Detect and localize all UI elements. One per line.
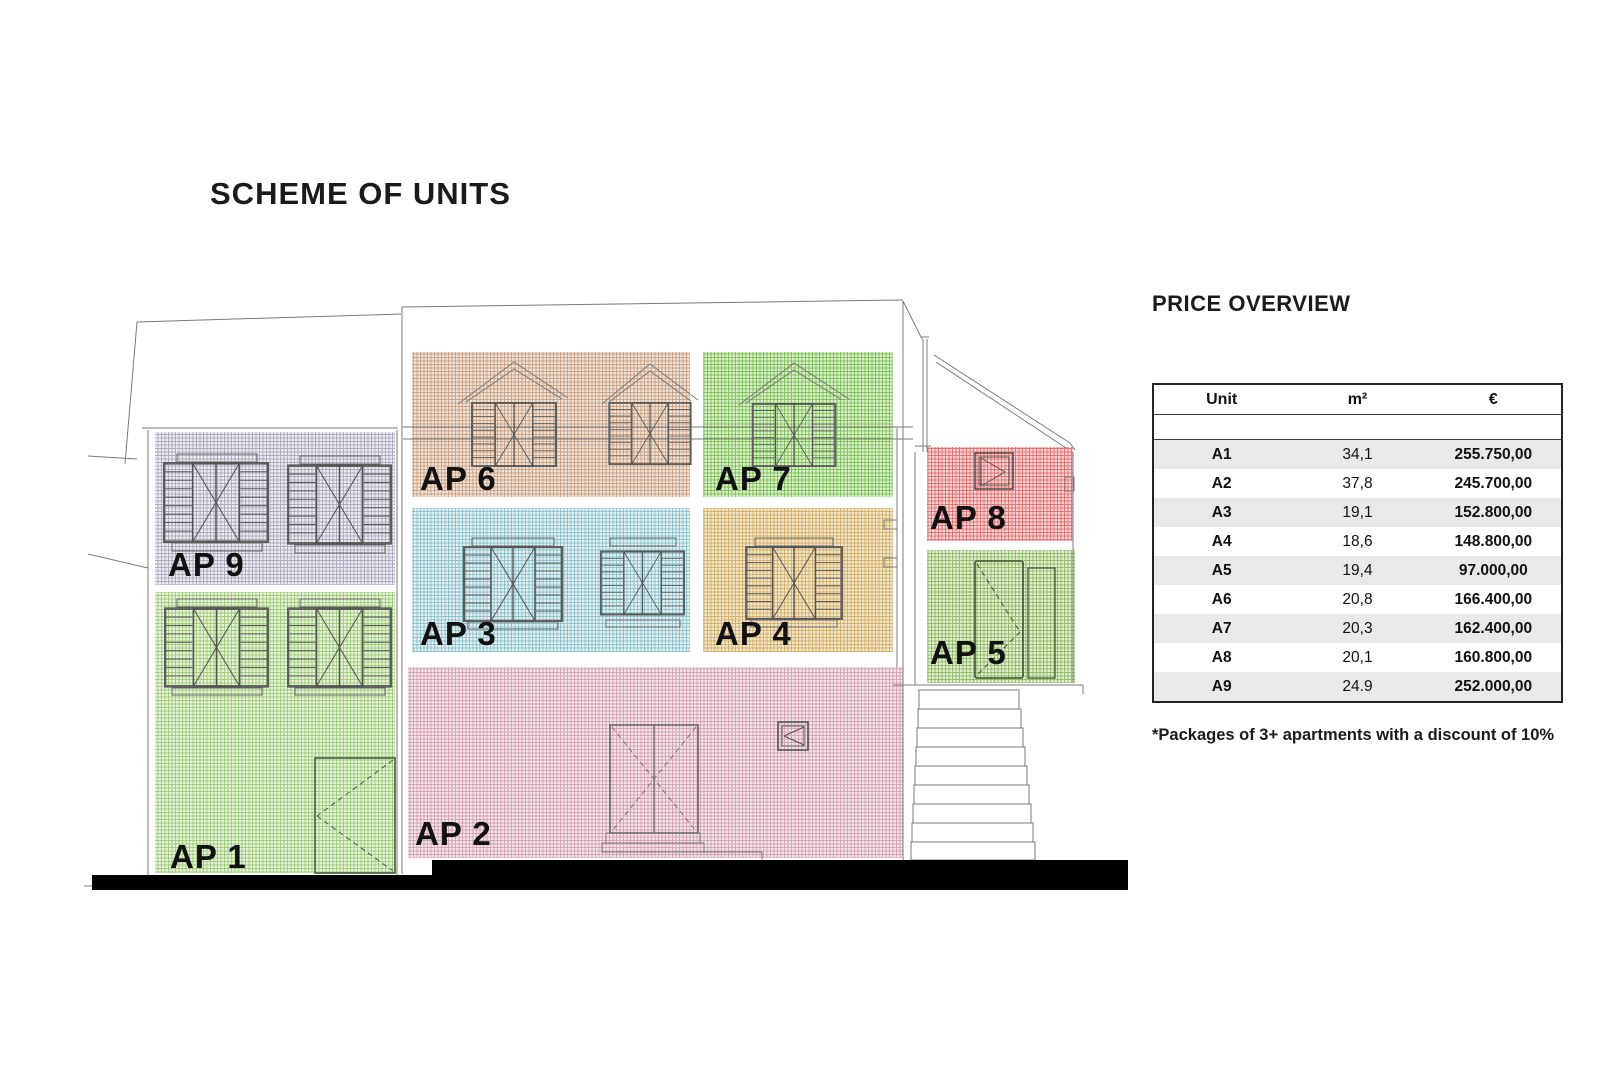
unit-cell: A9 bbox=[1153, 672, 1289, 702]
unit-cell: A4 bbox=[1153, 527, 1289, 556]
price-cell: 148.800,00 bbox=[1426, 527, 1562, 556]
unit-label-ap2: AP 2 bbox=[415, 815, 492, 852]
unit-label-ap1: AP 1 bbox=[170, 838, 247, 875]
unit-cell: A7 bbox=[1153, 614, 1289, 643]
unit-cell: A8 bbox=[1153, 643, 1289, 672]
unit-cell: A2 bbox=[1153, 469, 1289, 498]
unit-label-ap8: AP 8 bbox=[930, 499, 1007, 536]
price-overview-heading: PRICE OVERVIEW bbox=[1152, 291, 1351, 317]
price-row: A820,1160.800,00 bbox=[1153, 643, 1562, 672]
col-header-price: € bbox=[1426, 384, 1562, 415]
page: SCHEME OF UNITS bbox=[0, 0, 1620, 1080]
area-cell: 19,4 bbox=[1289, 556, 1425, 585]
price-row: A620,8166.400,00 bbox=[1153, 585, 1562, 614]
area-cell: 20,1 bbox=[1289, 643, 1425, 672]
price-row: A924.9252.000,00 bbox=[1153, 672, 1562, 702]
unit-label-ap6: AP 6 bbox=[420, 460, 497, 497]
area-cell: 37,8 bbox=[1289, 469, 1425, 498]
discount-footnote: *Packages of 3+ apartments with a discou… bbox=[1152, 726, 1554, 745]
price-row: A134,1255.750,00 bbox=[1153, 440, 1562, 470]
col-header-area: m² bbox=[1289, 384, 1425, 415]
price-row: A237,8245.700,00 bbox=[1153, 469, 1562, 498]
price-cell: 152.800,00 bbox=[1426, 498, 1562, 527]
price-cell: 160.800,00 bbox=[1426, 643, 1562, 672]
stairs bbox=[911, 690, 1035, 860]
price-cell: 166.400,00 bbox=[1426, 585, 1562, 614]
unit-cell: A6 bbox=[1153, 585, 1289, 614]
unit-label-ap5: AP 5 bbox=[930, 634, 1007, 671]
price-cell: 162.400,00 bbox=[1426, 614, 1562, 643]
price-row: A720,3162.400,00 bbox=[1153, 614, 1562, 643]
price-table: Unit m² € A134,1255.750,00A237,8245.700,… bbox=[1152, 383, 1563, 703]
spacer-row bbox=[1153, 415, 1562, 440]
unit-cell: A5 bbox=[1153, 556, 1289, 585]
price-table-body: A134,1255.750,00A237,8245.700,00A319,115… bbox=[1153, 440, 1562, 703]
unit-cell: A1 bbox=[1153, 440, 1289, 470]
price-cell: 252.000,00 bbox=[1426, 672, 1562, 702]
price-row: A519,497.000,00 bbox=[1153, 556, 1562, 585]
price-row: A418,6148.800,00 bbox=[1153, 527, 1562, 556]
unit-label-ap3: AP 3 bbox=[420, 615, 497, 652]
area-cell: 34,1 bbox=[1289, 440, 1425, 470]
unit-cell: A3 bbox=[1153, 498, 1289, 527]
price-row: A319,1152.800,00 bbox=[1153, 498, 1562, 527]
price-table-header: Unit m² € bbox=[1153, 384, 1562, 415]
price-cell: 97.000,00 bbox=[1426, 556, 1562, 585]
price-cell: 255.750,00 bbox=[1426, 440, 1562, 470]
unit-label-ap7: AP 7 bbox=[715, 460, 792, 497]
area-cell: 20,8 bbox=[1289, 585, 1425, 614]
col-header-unit: Unit bbox=[1153, 384, 1289, 415]
unit-regions bbox=[155, 352, 1075, 873]
unit-label-ap4: AP 4 bbox=[715, 615, 792, 652]
area-cell: 24.9 bbox=[1289, 672, 1425, 702]
price-cell: 245.700,00 bbox=[1426, 469, 1562, 498]
area-cell: 19,1 bbox=[1289, 498, 1425, 527]
area-cell: 20,3 bbox=[1289, 614, 1425, 643]
unit-label-ap9: AP 9 bbox=[168, 546, 245, 583]
area-cell: 18,6 bbox=[1289, 527, 1425, 556]
